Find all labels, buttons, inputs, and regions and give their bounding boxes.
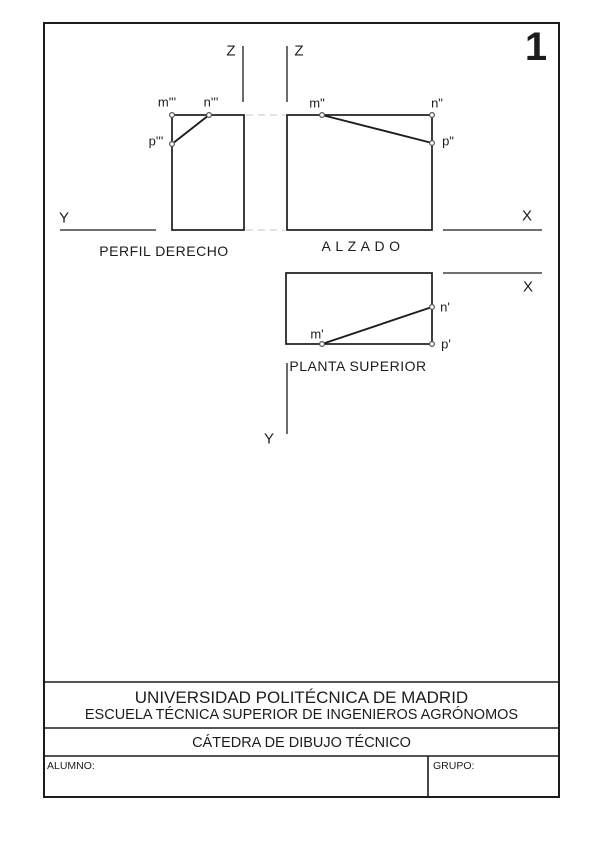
perfil-segment — [172, 115, 209, 144]
planta-point-n-label: n' — [440, 301, 450, 314]
alzado-point-p-label: p" — [442, 135, 454, 148]
perfil-point-p-label: p''' — [149, 135, 164, 148]
point-p-perfil — [170, 142, 175, 147]
point-p-planta — [430, 342, 435, 347]
sheet-number: 1 — [525, 27, 547, 67]
planta-outline — [286, 273, 432, 344]
point-m-perfil — [170, 113, 175, 118]
alzado-segment — [322, 115, 432, 143]
point-m-alzado — [320, 113, 325, 118]
y-axis-left-label: Y — [59, 211, 69, 226]
titleblock-university: UNIVERSIDAD POLITÉCNICA DE MADRID — [44, 688, 559, 708]
alzado-outline — [287, 115, 432, 230]
x-axis-planta-label: X — [523, 280, 533, 295]
planta-point-p-label: p' — [441, 338, 451, 351]
titleblock-department: CÁTEDRA DE DIBUJO TÉCNICO — [44, 735, 559, 752]
drawing-sheet: 1 Z Z Y X X Y m''' n''' p''' m" n" p" m'… — [0, 0, 600, 848]
alzado-point-m-label: m" — [309, 97, 324, 110]
point-p-alzado — [430, 141, 435, 146]
x-axis-alzado-label: X — [522, 209, 532, 224]
alzado-point-n-label: n" — [431, 97, 443, 110]
planta-segment — [322, 307, 432, 344]
planta-point-m-label: m' — [310, 328, 323, 341]
alzado-caption: ALZADO — [321, 239, 404, 253]
y-axis-planta-label: Y — [264, 432, 274, 447]
perfil-caption: PERFIL DERECHO — [99, 244, 228, 258]
titleblock-school: ESCUELA TÉCNICA SUPERIOR DE INGENIEROS A… — [44, 707, 559, 724]
grupo-field-label: GRUPO: — [433, 761, 474, 772]
point-m-planta — [320, 342, 325, 347]
point-n-alzado — [430, 113, 435, 118]
perfil-outline — [172, 115, 244, 230]
z-axis-left-label: Z — [226, 44, 235, 59]
planta-caption: PLANTA SUPERIOR — [289, 359, 426, 373]
point-n-planta — [430, 305, 435, 310]
perfil-point-n-label: n''' — [204, 96, 219, 109]
alumno-field-label: ALUMNO: — [47, 761, 95, 772]
perfil-point-m-label: m''' — [158, 96, 176, 109]
sheet-border — [44, 23, 559, 797]
z-axis-right-label: Z — [294, 44, 303, 59]
point-n-perfil — [207, 113, 212, 118]
